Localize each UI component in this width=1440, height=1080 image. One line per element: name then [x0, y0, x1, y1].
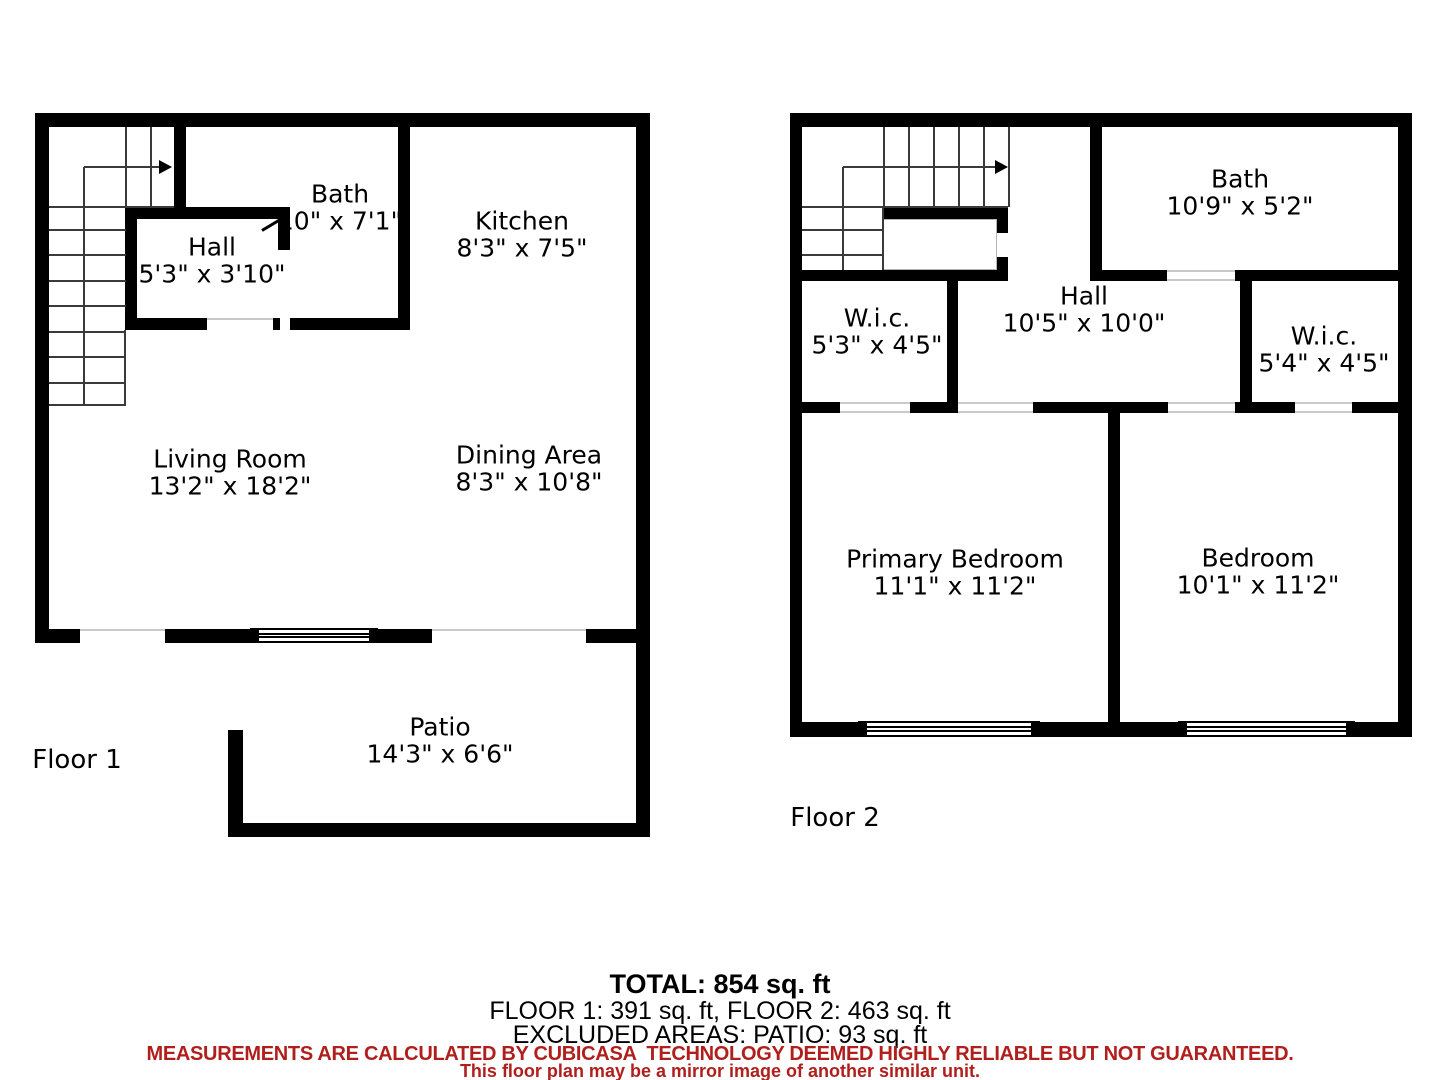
stair-tread	[49, 331, 126, 333]
room-name: Dining Area	[456, 443, 603, 470]
wall	[790, 127, 802, 737]
window-cap	[860, 723, 867, 735]
wall	[790, 402, 840, 413]
door-opening-sill	[1295, 411, 1352, 413]
room-label-wic-left: W.i.c. 5'3" x 4'5"	[811, 306, 942, 359]
room-label-primary-bedroom: Primary Bedroom 11'1" x 11'2"	[846, 547, 1064, 600]
room-dims: 5'3" x 3'10"	[139, 261, 286, 288]
door-opening-sill	[1167, 270, 1235, 272]
floor2-label: Floor 2	[790, 805, 880, 833]
door-jamb	[997, 257, 1008, 270]
door-opening-sill	[207, 318, 273, 320]
wall	[35, 629, 80, 643]
wall	[228, 730, 243, 837]
window-cap	[1031, 723, 1038, 735]
door-opening-sill	[958, 402, 1033, 404]
room-label-bath2: Bath 10'9" x 5'2"	[1167, 167, 1314, 220]
wall	[636, 643, 650, 837]
room-dims: 5'3" x 4'5"	[811, 332, 942, 359]
door-jamb	[997, 219, 1008, 233]
room-name: W.i.c.	[1258, 324, 1389, 351]
room-name: Bath	[1167, 167, 1314, 194]
room-dims: 10'9" x 5'2"	[1167, 193, 1314, 220]
wall	[1090, 270, 1167, 281]
room-dims: 8'3" x 7'5"	[456, 235, 587, 262]
room-name: Patio	[367, 715, 514, 742]
floor1-label: Floor 1	[32, 747, 122, 775]
room-label-hall2: Hall 10'5" x 10'0"	[1003, 284, 1166, 337]
door-opening-sill	[1168, 402, 1235, 404]
stair-tread	[802, 206, 1008, 208]
wall	[125, 207, 137, 330]
stair-side-line	[124, 330, 126, 406]
wall	[125, 318, 207, 330]
wall	[1398, 127, 1412, 737]
wall	[1040, 722, 1178, 737]
room-label-hall: Hall 5'3" x 3'10"	[139, 235, 286, 288]
wall	[1033, 402, 1168, 413]
wall	[790, 113, 1412, 127]
stair-arrowhead-icon	[159, 160, 172, 174]
wall	[1240, 281, 1252, 402]
stair-direction-arrow	[84, 166, 160, 168]
window	[858, 721, 1040, 737]
room-label-bath: Bath 10" x 7'1"	[278, 182, 402, 235]
room-dims: 11'1" x 11'2"	[846, 573, 1064, 600]
room-name: Hall	[1003, 284, 1166, 311]
wall	[378, 629, 432, 643]
stair-tread	[49, 305, 126, 307]
stair-tread	[49, 404, 126, 406]
wall	[1090, 127, 1102, 273]
wall	[35, 113, 650, 127]
stair-tread	[49, 229, 126, 231]
room-label-patio: Patio 14'3" x 6'6"	[367, 715, 514, 768]
wall	[636, 127, 650, 643]
room-dims: 10" x 7'1"	[278, 208, 402, 235]
window-line	[1187, 726, 1346, 728]
wall	[165, 629, 250, 643]
room-label-wic-right: W.i.c. 5'4" x 4'5"	[1258, 324, 1389, 377]
window-line	[867, 730, 1031, 732]
stair-tread	[49, 206, 174, 208]
room-dims: 8'3" x 10'8"	[456, 469, 603, 496]
wall	[228, 823, 650, 837]
room-label-kitchen: Kitchen 8'3" x 7'5"	[456, 209, 587, 262]
door-opening-sill	[958, 411, 1033, 413]
stair-direction-arrow	[842, 167, 844, 270]
room-dims: 13'2" x 18'2"	[149, 473, 312, 500]
door-opening-sill	[1167, 279, 1235, 281]
room-dims: 14'3" x 6'6"	[367, 741, 514, 768]
stair-tread	[49, 382, 126, 384]
window-line	[259, 633, 369, 635]
room-dims: 5'4" x 4'5"	[1258, 350, 1389, 377]
window-cap	[369, 630, 376, 641]
wall	[174, 127, 186, 207]
stair-landing	[883, 219, 997, 270]
disclaimer-line2: This floor plan may be a mirror image of…	[0, 1061, 1440, 1080]
stair-tread	[49, 254, 126, 256]
stair-side-line	[882, 207, 884, 270]
window-line	[259, 636, 369, 638]
summary-total: TOTAL: 854 sq. ft	[0, 969, 1440, 1000]
room-label-living-room: Living Room 13'2" x 18'2"	[149, 447, 312, 500]
window-cap	[252, 630, 259, 641]
window-cap	[1180, 723, 1187, 735]
wall	[947, 281, 958, 402]
room-dims: 10'5" x 10'0"	[1003, 310, 1166, 337]
wall	[1235, 270, 1412, 281]
door-opening-sill	[1168, 411, 1235, 413]
room-name: Bath	[278, 182, 402, 209]
door-opening-sill	[1295, 402, 1352, 404]
stair-direction-arrow	[83, 167, 85, 405]
window	[1178, 721, 1355, 737]
wall	[910, 402, 958, 413]
room-name: W.i.c.	[811, 306, 942, 333]
room-name: Primary Bedroom	[846, 547, 1064, 574]
wall	[1352, 402, 1412, 413]
stair-tread	[1008, 127, 1010, 207]
wall	[290, 318, 410, 330]
door-opening-sill	[840, 402, 910, 404]
wall	[1235, 402, 1295, 413]
door-opening-sill	[432, 629, 586, 631]
window-line	[1187, 730, 1346, 732]
window-line	[867, 726, 1031, 728]
room-dims: 10'1" x 11'2"	[1177, 572, 1340, 599]
stair-arrowhead-icon	[995, 160, 1008, 174]
wall	[586, 629, 650, 643]
room-name: Hall	[139, 235, 286, 262]
room-label-bedroom: Bedroom 10'1" x 11'2"	[1177, 546, 1340, 599]
wall	[125, 207, 290, 219]
floorplan-canvas: Hall 5'3" x 3'10" Bath 10" x 7'1" Kitche…	[0, 0, 1440, 1080]
wall	[35, 127, 49, 643]
door-opening-sill	[80, 629, 165, 631]
room-name: Kitchen	[456, 209, 587, 236]
wall	[1355, 722, 1412, 737]
stair-direction-arrow	[843, 166, 996, 168]
wall	[1108, 413, 1120, 722]
wall	[790, 722, 858, 737]
window-cap	[1346, 723, 1353, 735]
room-name: Bedroom	[1177, 546, 1340, 573]
wall	[802, 270, 1008, 281]
wall	[273, 318, 280, 330]
wall	[883, 207, 1008, 219]
window	[250, 628, 378, 643]
room-name: Living Room	[149, 447, 312, 474]
room-label-dining-area: Dining Area 8'3" x 10'8"	[456, 443, 603, 496]
stair-tread	[49, 280, 126, 282]
stair-tread	[49, 356, 126, 358]
door-opening-sill	[840, 411, 910, 413]
